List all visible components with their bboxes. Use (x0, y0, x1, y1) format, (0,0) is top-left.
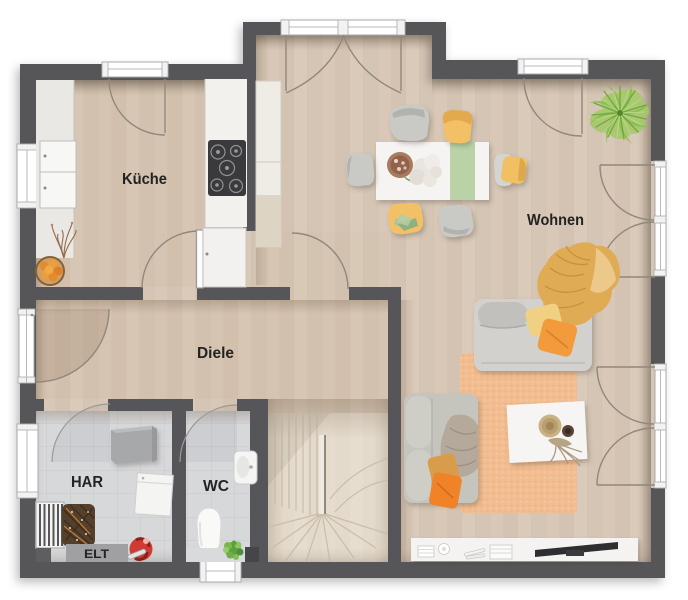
svg-text:ELT: ELT (84, 547, 110, 561)
svg-text:Wohnen: Wohnen (527, 212, 584, 229)
svg-text:Diele: Diele (197, 345, 234, 362)
svg-text:HAR: HAR (71, 474, 103, 491)
svg-text:Küche: Küche (122, 171, 167, 188)
svg-text:WC: WC (203, 478, 229, 495)
